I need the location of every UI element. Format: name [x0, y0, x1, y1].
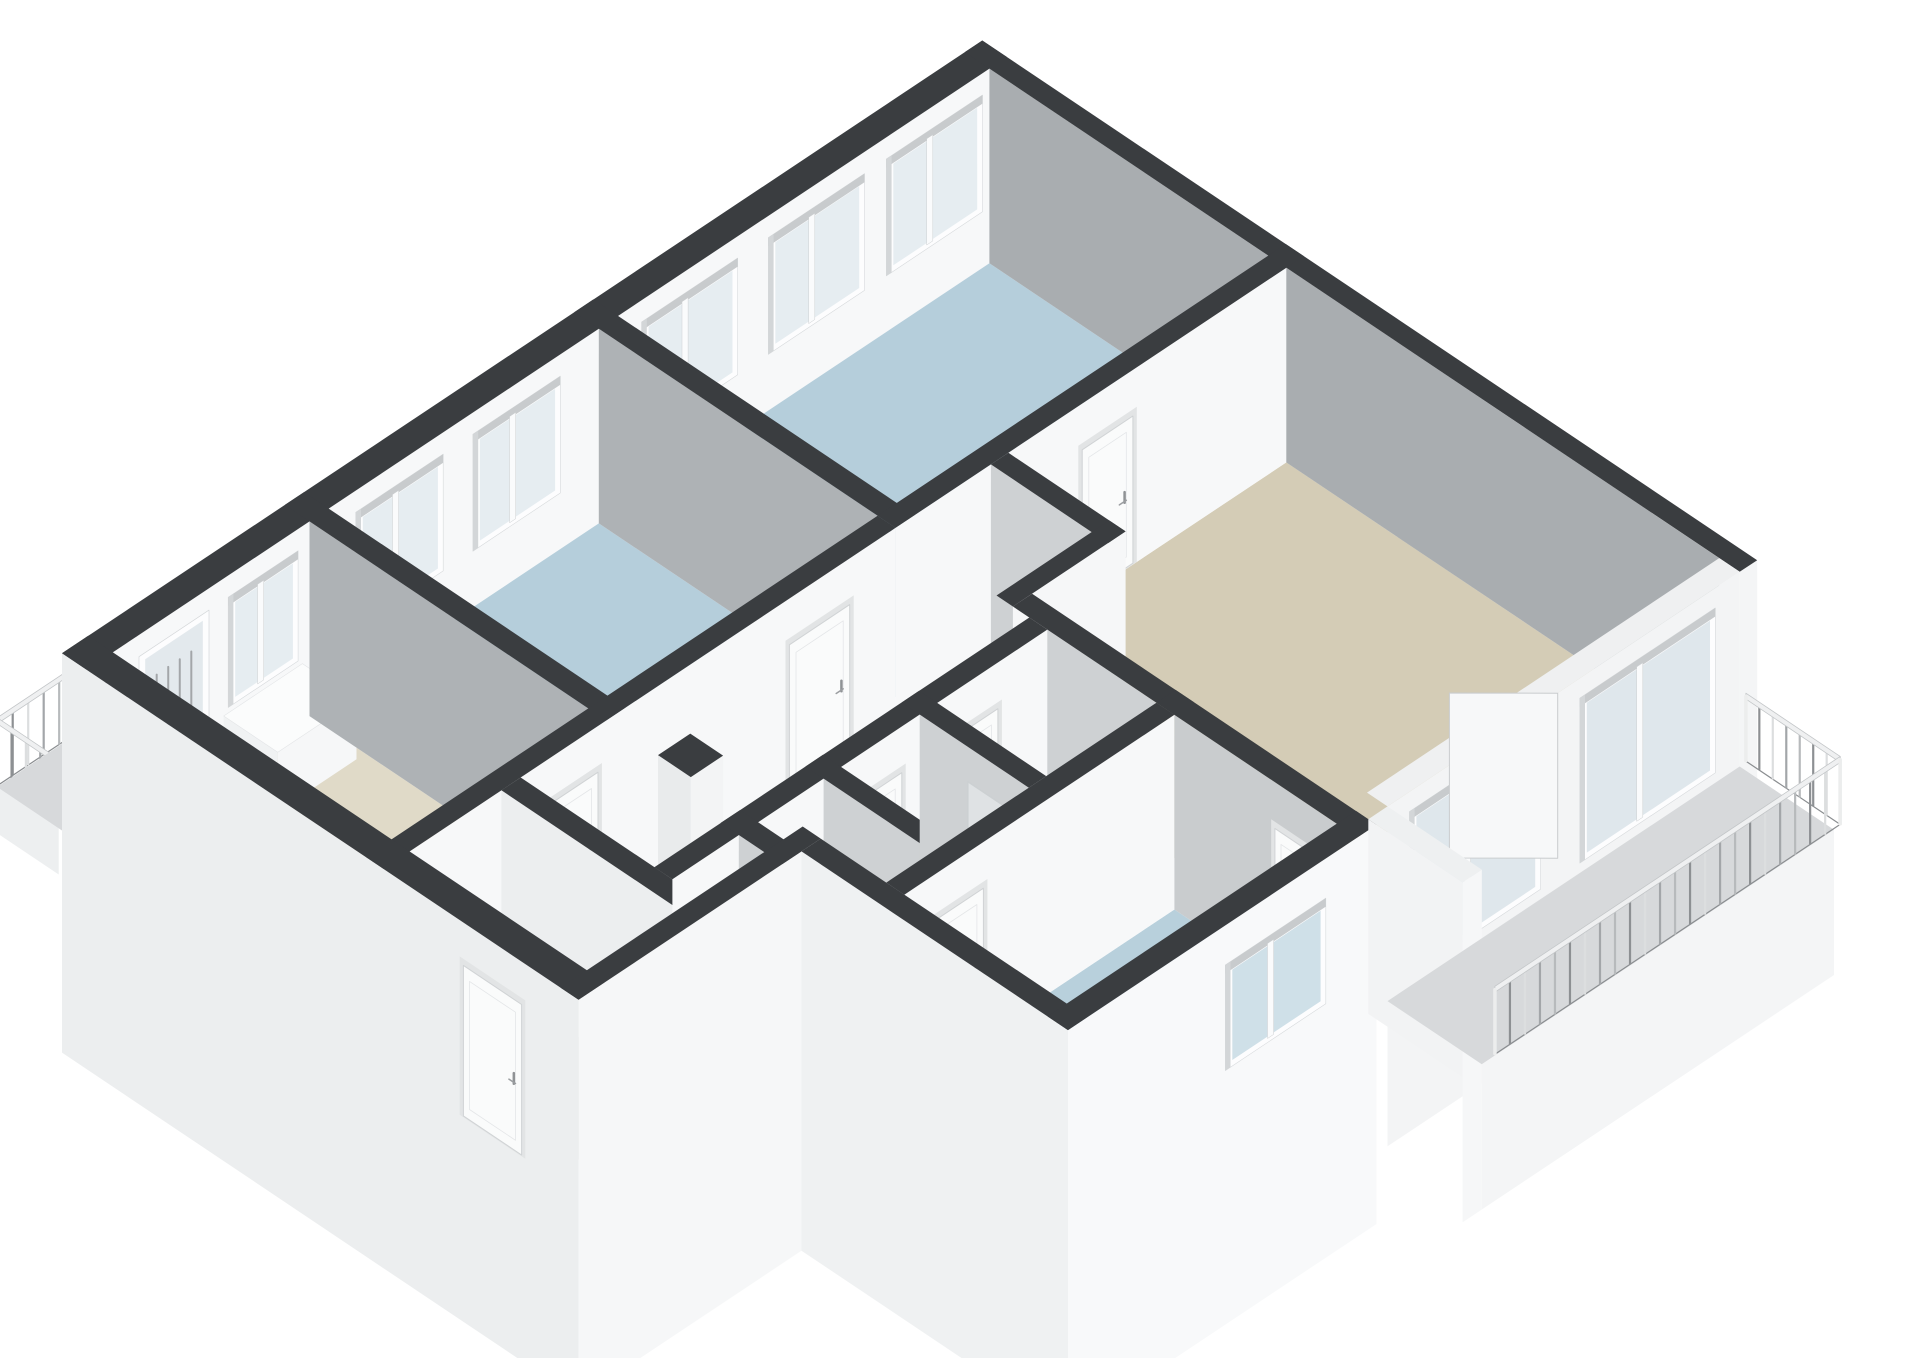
- living-balcony-door-open: [1449, 693, 1557, 858]
- floorplan-3d-image: [0, 0, 1920, 1358]
- floorplan-3d-scene: [0, 0, 1920, 1358]
